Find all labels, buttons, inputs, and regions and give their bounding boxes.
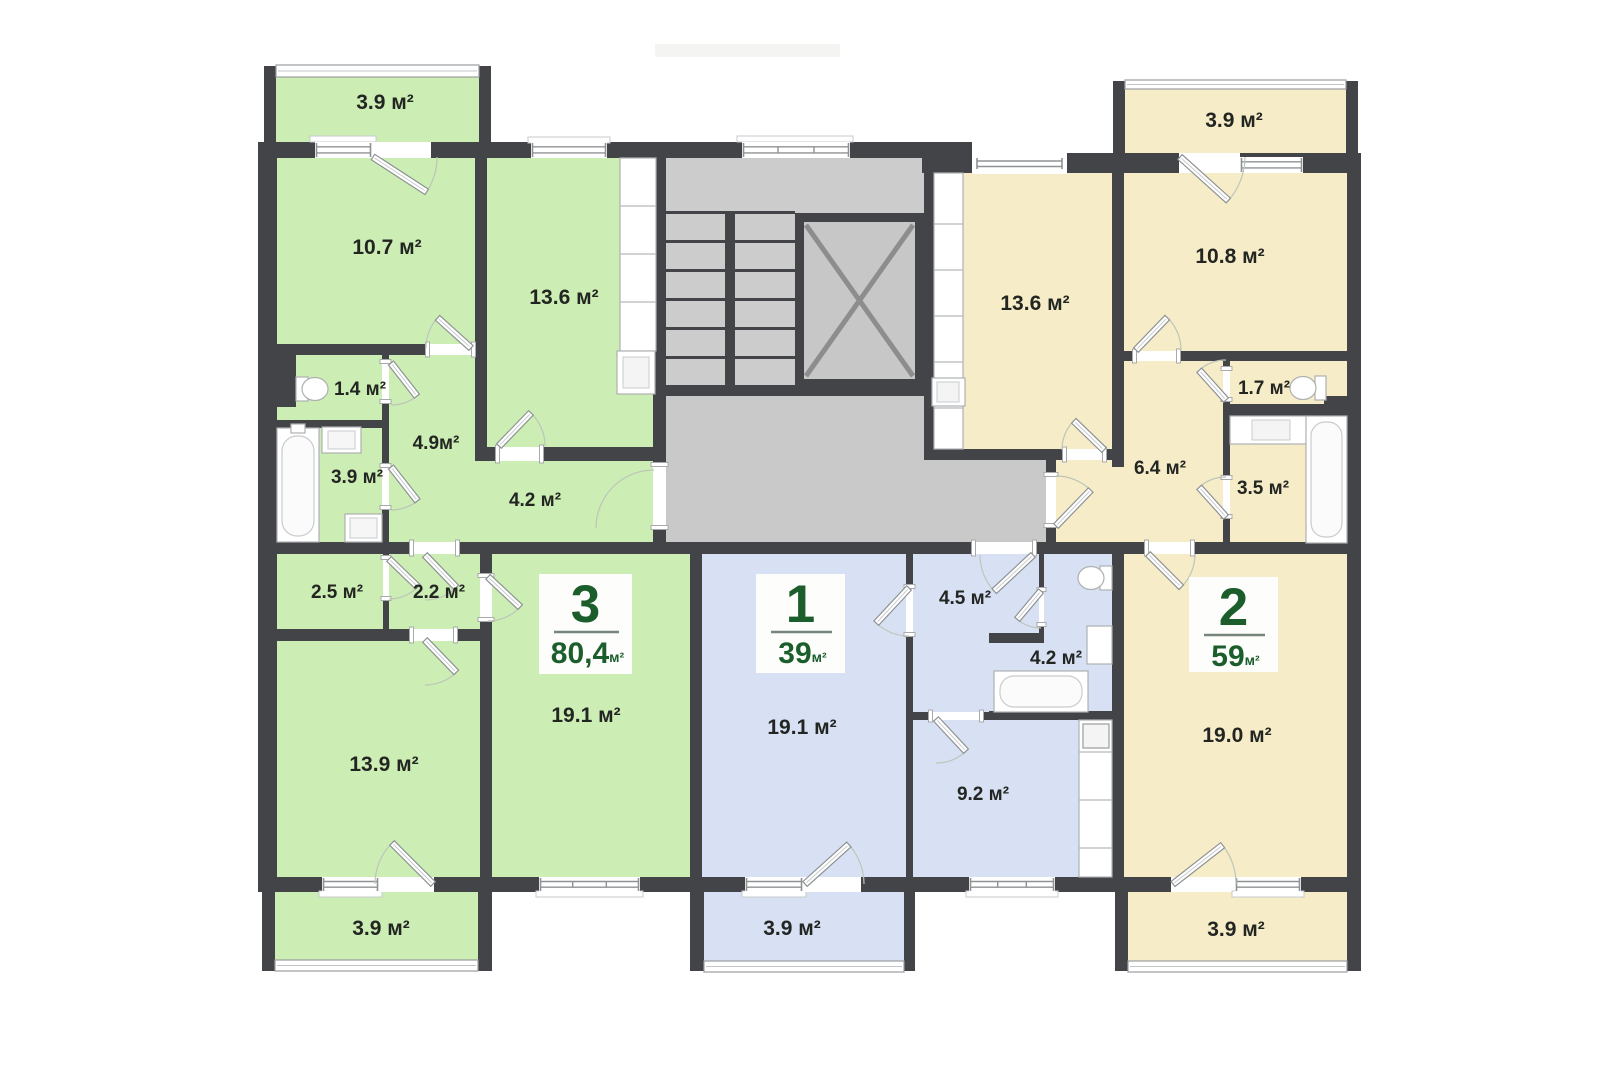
svg-text:13.6 м²: 13.6 м²	[1000, 292, 1069, 315]
svg-text:3.9 м²: 3.9 м²	[331, 467, 383, 488]
svg-text:1: 1	[786, 575, 815, 634]
svg-text:2: 2	[1219, 578, 1248, 637]
svg-text:3.5 м²: 3.5 м²	[1237, 478, 1289, 499]
svg-text:2.5 м²: 2.5 м²	[311, 582, 363, 603]
svg-text:4.2 м²: 4.2 м²	[1030, 648, 1082, 669]
svg-text:19.1 м²: 19.1 м²	[767, 716, 836, 739]
svg-text:10.8 м²: 10.8 м²	[1195, 245, 1264, 268]
svg-text:13.6 м²: 13.6 м²	[529, 286, 598, 309]
svg-text:3.9 м²: 3.9 м²	[1207, 918, 1265, 941]
svg-text:3.9 м²: 3.9 м²	[352, 917, 410, 940]
svg-text:4.5 м²: 4.5 м²	[939, 588, 991, 609]
svg-text:1.7 м²: 1.7 м²	[1238, 378, 1290, 399]
svg-text:10.7 м²: 10.7 м²	[352, 236, 421, 259]
svg-text:6.4 м²: 6.4 м²	[1134, 458, 1186, 479]
svg-text:3.9 м²: 3.9 м²	[1205, 109, 1263, 132]
svg-text:13.9 м²: 13.9 м²	[349, 753, 418, 776]
svg-text:4.9м²: 4.9м²	[413, 433, 460, 454]
svg-text:3.9 м²: 3.9 м²	[356, 91, 414, 114]
svg-text:1.4 м²: 1.4 м²	[334, 379, 386, 400]
svg-text:3: 3	[571, 575, 600, 634]
svg-text:19.0 м²: 19.0 м²	[1202, 724, 1271, 747]
svg-text:9.2 м²: 9.2 м²	[957, 784, 1009, 805]
svg-text:3.9 м²: 3.9 м²	[763, 917, 821, 940]
svg-text:2.2 м²: 2.2 м²	[413, 582, 465, 603]
svg-text:19.1 м²: 19.1 м²	[551, 704, 620, 727]
svg-text:4.2 м²: 4.2 м²	[509, 490, 561, 511]
